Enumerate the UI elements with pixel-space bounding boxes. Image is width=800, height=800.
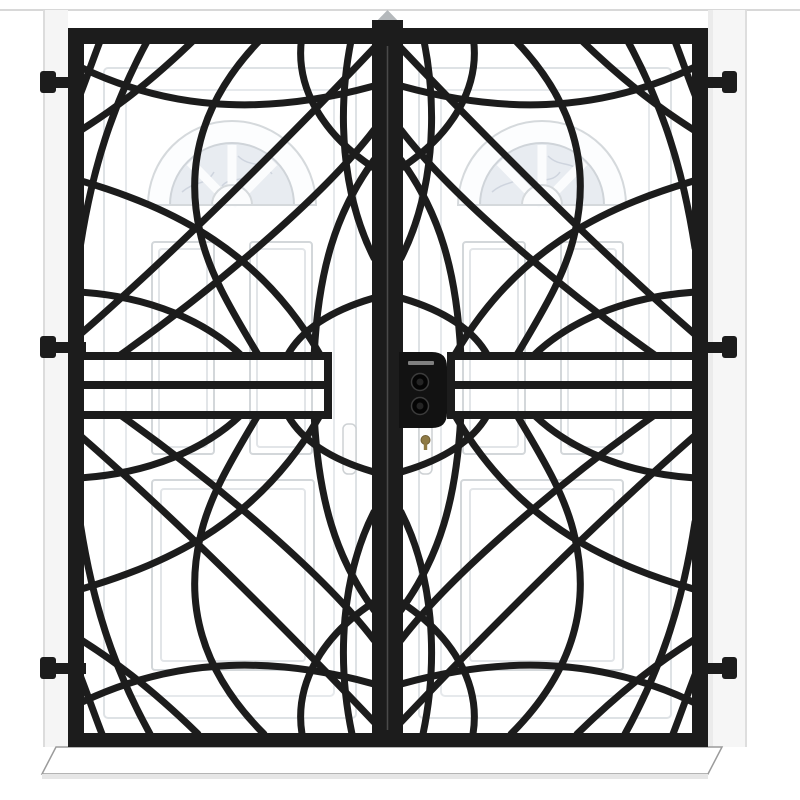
band-right-rail-top <box>447 352 692 360</box>
frame-right-stile <box>692 28 708 747</box>
band-left-rail-bottom <box>84 411 332 419</box>
wall-right-shadow <box>708 10 713 747</box>
threshold-sill <box>42 747 722 779</box>
product-photo-security-grille <box>0 0 800 800</box>
frame-left-stile <box>68 28 84 747</box>
wall-right-reveal <box>708 10 746 747</box>
band-left-end-bar <box>324 352 332 419</box>
band-left-rail-mid <box>84 381 332 389</box>
grille-lock <box>399 352 447 428</box>
center-post <box>372 10 403 747</box>
band-right-rail-bottom <box>447 411 692 419</box>
band-right-end-bar <box>447 352 455 419</box>
band-right-rail-mid <box>447 381 692 389</box>
lock-cylinder-bottom-core <box>417 403 424 410</box>
lock-cylinder-top-core <box>417 379 424 386</box>
lock-brand-strip <box>408 361 434 365</box>
band-left-rail-top <box>84 352 332 360</box>
sill-slab <box>42 747 722 774</box>
grille-photo-canvas <box>0 0 800 800</box>
gold-keyhole-stem <box>424 441 427 450</box>
wall-left-reveal <box>44 10 68 747</box>
sill-shadow <box>42 774 708 779</box>
